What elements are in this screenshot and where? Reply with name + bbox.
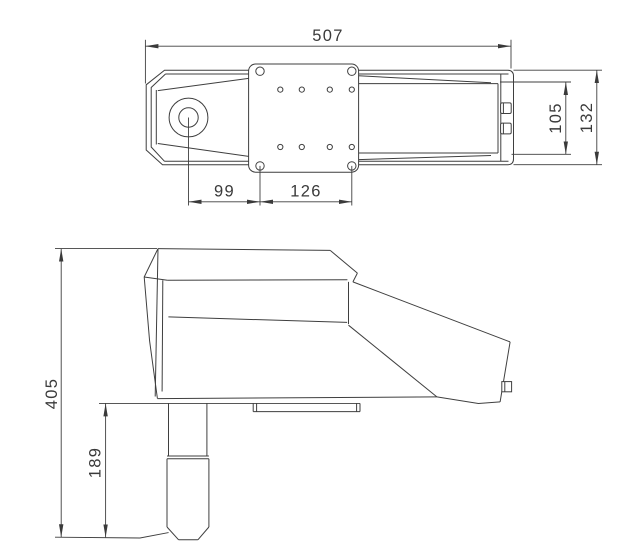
dim-body-inner-height-text: 105 [547, 102, 565, 133]
bottom-plate [253, 403, 360, 411]
dim-lens-to-mount: 99 [189, 183, 261, 202]
keel-inner-line [155, 249, 158, 397]
keel-bevel-line [144, 277, 167, 280]
top-view: 507 99 126 105 132 [145, 27, 602, 206]
pole-tip-chamfer-right [198, 527, 209, 540]
taper-end-edge [500, 342, 510, 402]
nose-taper-top [158, 78, 249, 90]
support-pole [167, 403, 209, 539]
extension-line-bottom [55, 533, 169, 538]
front-face-bottom-edge [168, 317, 347, 323]
side-view: 405 189 [43, 249, 512, 540]
keel-inner-line2 [162, 280, 163, 391]
dim-lens-to-mount-text: 99 [214, 183, 235, 201]
dim-pole-length: 189 [87, 403, 106, 537]
dim-body-outer-height-text: 132 [578, 102, 596, 133]
body-inner-outline [151, 74, 165, 161]
dim-mount-hole-spacing: 126 [260, 183, 352, 202]
roof-top-edge [158, 249, 330, 251]
technical-drawing: 507 99 126 105 132 [0, 0, 632, 544]
connector-button [501, 103, 512, 114]
rear-connectors [501, 103, 512, 134]
mount-plate [249, 64, 359, 172]
rear-taper-top [359, 76, 491, 83]
drawing-canvas: 507 99 126 105 132 [0, 0, 632, 544]
rear-nub [502, 382, 512, 392]
dim-body-inner-height: 105 [500, 82, 571, 154]
roof-rear-bevel [330, 250, 357, 273]
dim-overall-height-text: 405 [43, 378, 61, 409]
pole-tip-chamfer-left [167, 527, 179, 540]
dim-mount-hole-spacing-text: 126 [290, 183, 321, 201]
dim-overall-length-text: 507 [312, 27, 343, 45]
nose-taper-bottom [158, 144, 249, 157]
dim-pole-length-text: 189 [87, 447, 105, 478]
taper-top-edge [353, 282, 510, 342]
rear-taper-bottom [359, 156, 491, 160]
roof-front-crease [167, 280, 347, 281]
taper-crease [349, 325, 437, 397]
body-bottom-edge [157, 397, 437, 399]
connector-button [501, 123, 512, 134]
roof-rear-edge [353, 273, 358, 282]
taper-bottom-edge [437, 397, 500, 404]
